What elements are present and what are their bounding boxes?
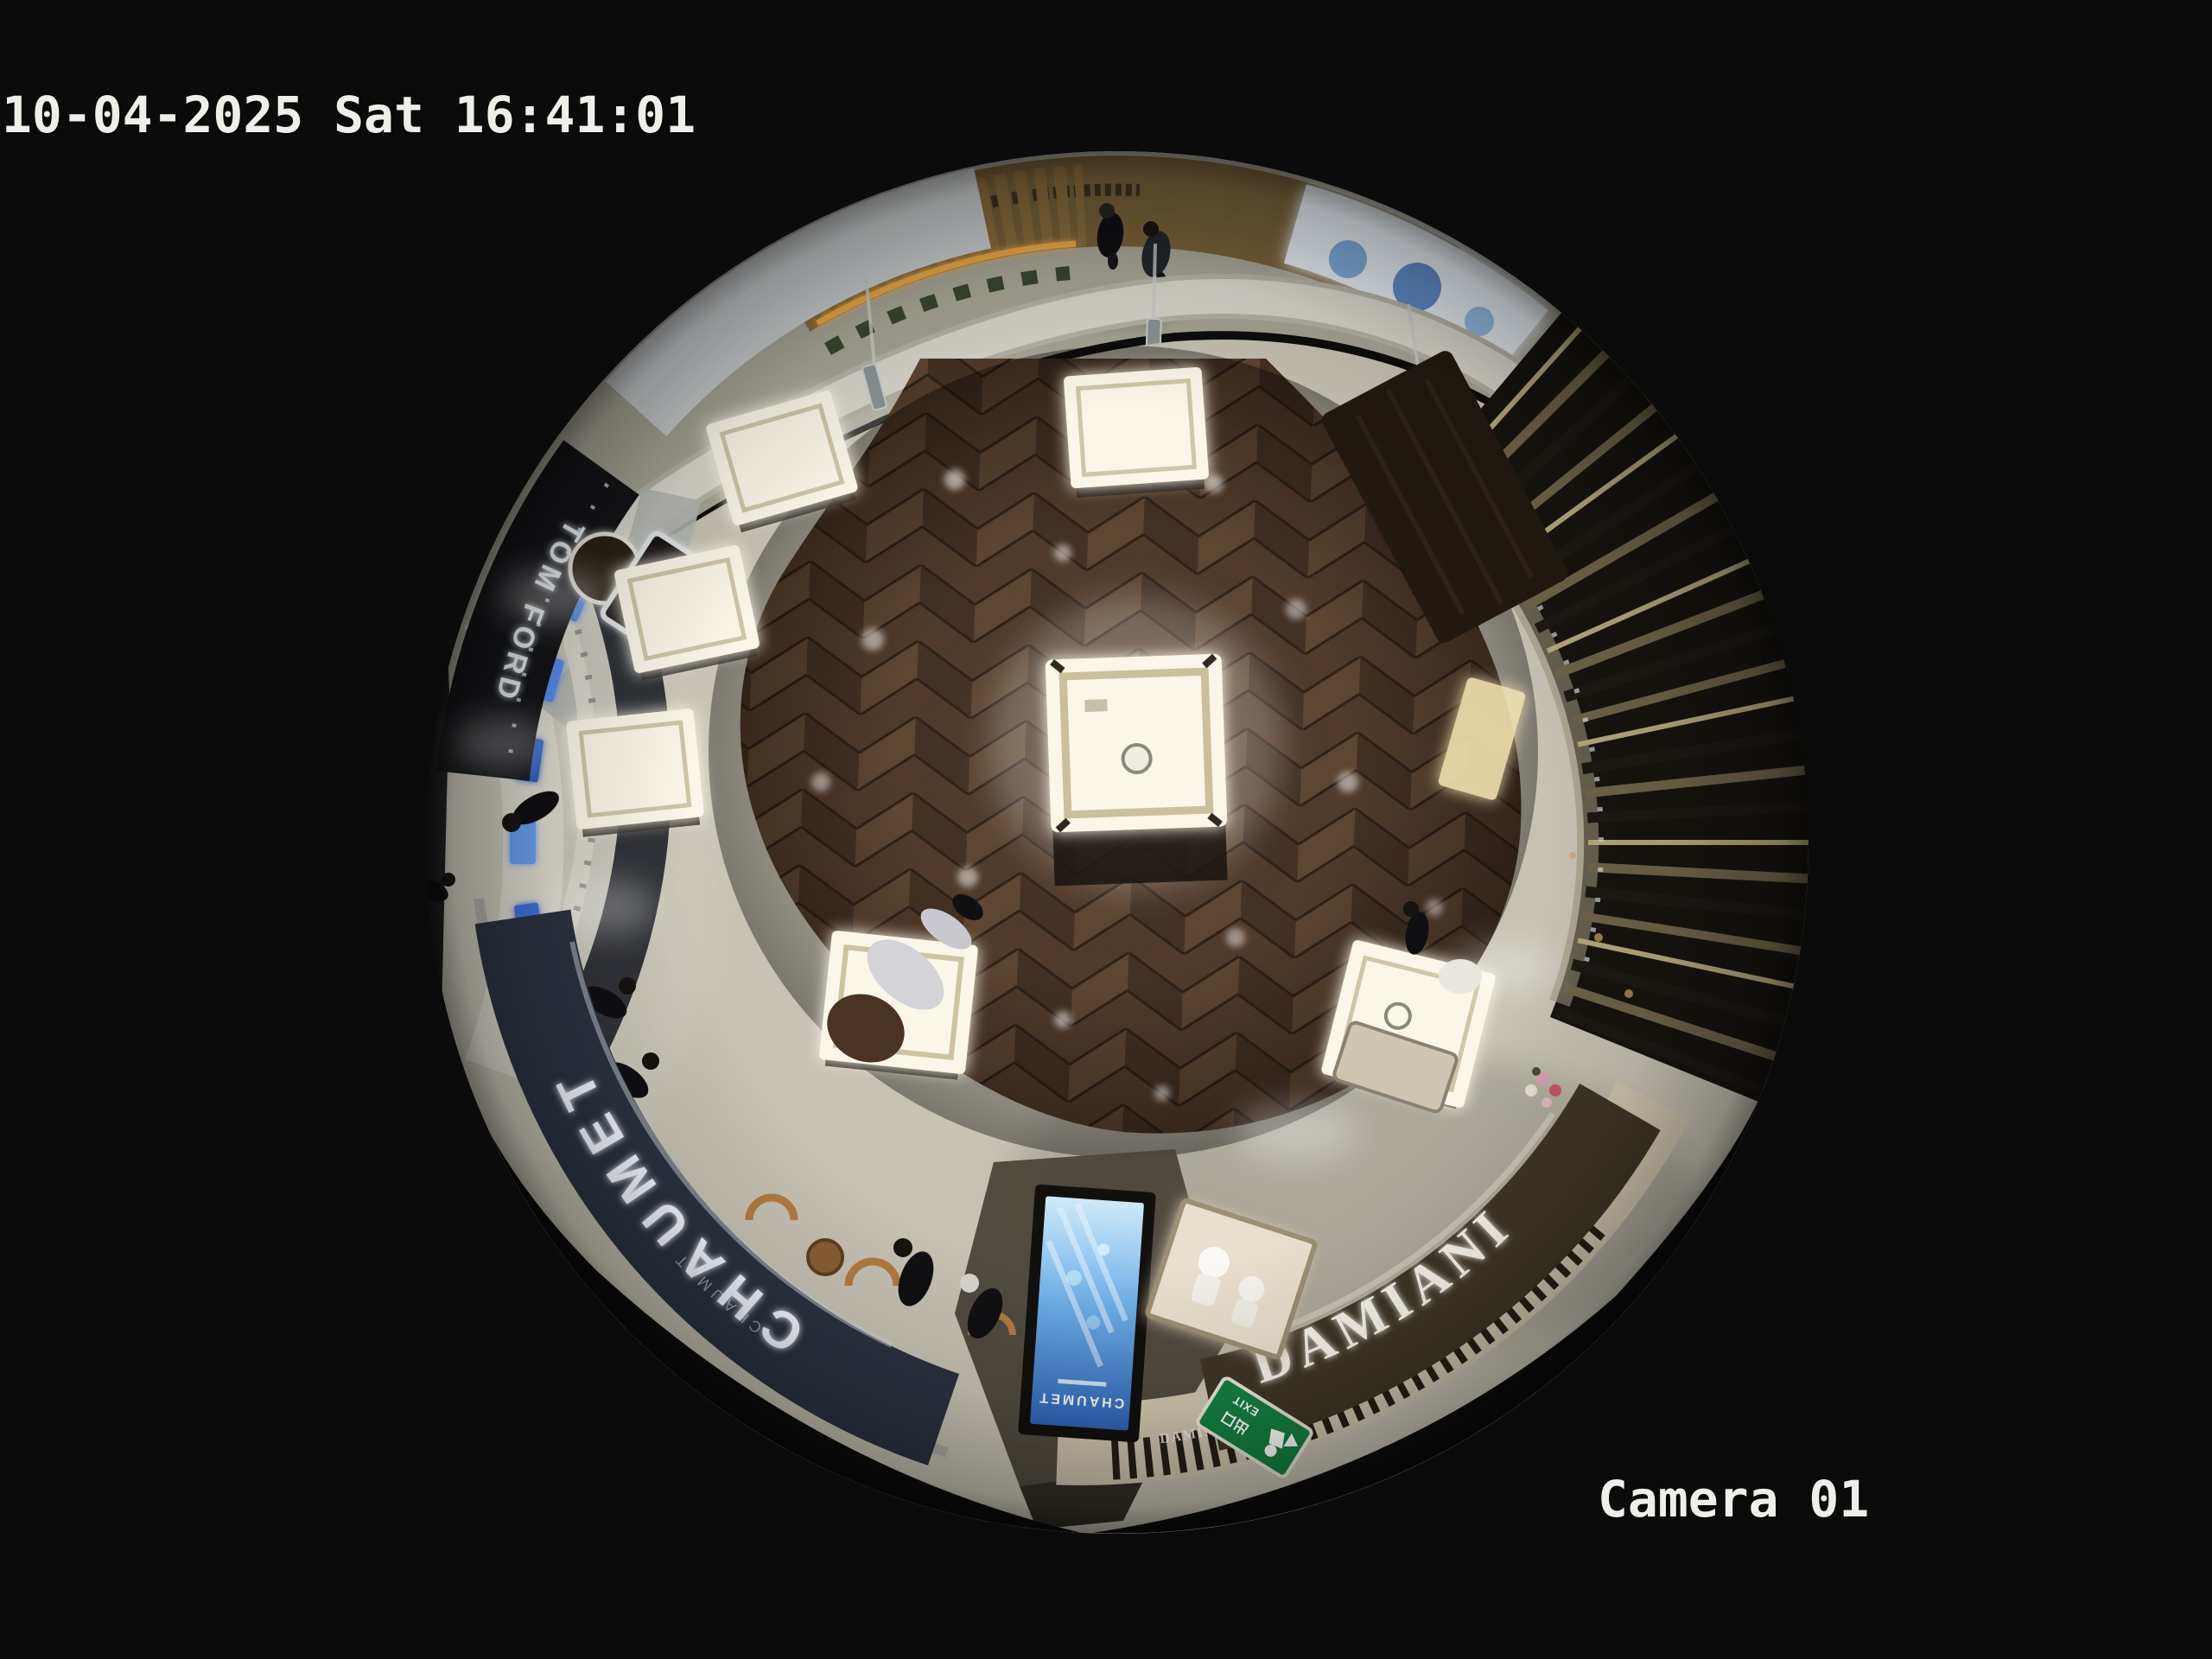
osd-camera-label: Camera 01	[1598, 1471, 1869, 1529]
osd-timestamp: 10-04-2025 Sat 16:41:01	[2, 86, 696, 144]
lens-vignette	[426, 151, 1808, 1534]
cctv-monitor-frame: TOM FORD TF	[0, 0, 2212, 1659]
fisheye-scene: TOM FORD TF	[412, 86, 1810, 1659]
fisheye-camera-view: TOM FORD TF	[0, 0, 2212, 1659]
